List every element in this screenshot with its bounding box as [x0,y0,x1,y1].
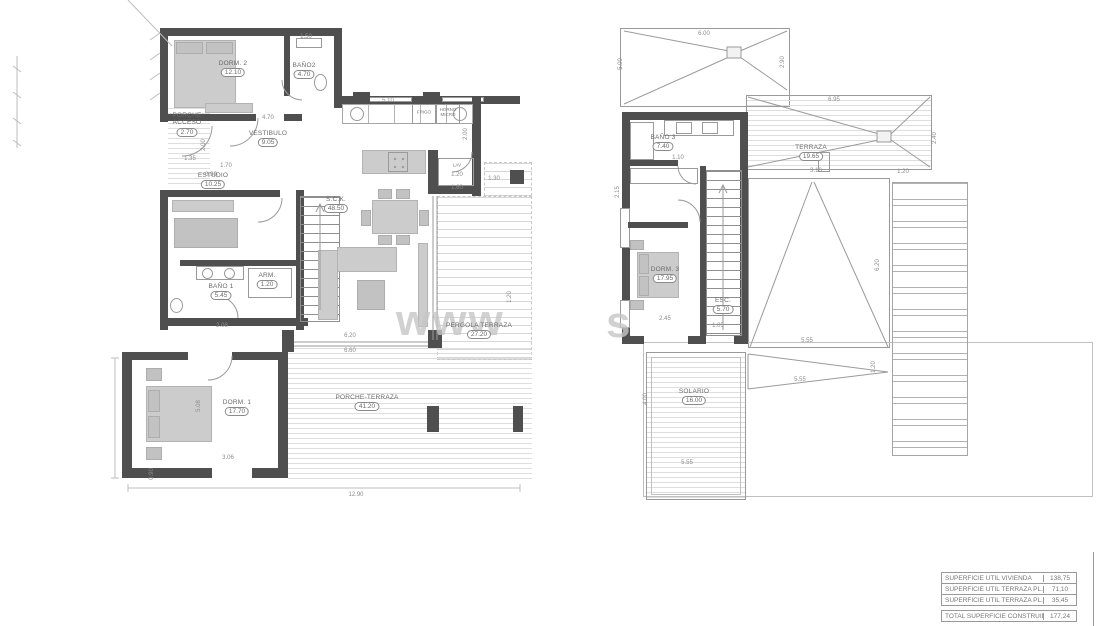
terraza-drain-diagonals [748,97,930,167]
dimension-label: 2.00 [463,128,469,140]
dimension-label: 6.20 [875,259,881,271]
dimension-label: 3.10 [810,168,822,174]
room-label-pergola-terraza: PERGOLA TERRAZA27.20 [446,322,512,339]
floorplan-sheet: www s [0,0,1110,626]
dimension-label: 1.30 [488,176,500,182]
room-label-solario: SOLARIO16.00 [679,388,709,405]
dimension-label: 0.90 [205,172,217,178]
room-label-vestibulo: VESTIBULO9.05 [249,130,287,147]
dimension-label: 1.35 [184,156,196,162]
dimension-lines [111,358,520,492]
dimension-label: 1.20 [897,169,909,175]
dimension-label: 1.20 [451,172,463,178]
surface-area-table: SUPERFICIE ÚTIL VIVIENDA 138,75 SUPERFIC… [941,572,1077,622]
dimension-label: 0.90 [149,468,155,480]
dimension-label: 2.40 [932,132,938,144]
dimension-label: 1.10 [672,155,684,161]
dimension-label: 1.05 [712,323,724,329]
room-label-bano2: BAÑO24.70 [292,62,315,79]
plan-linework [0,0,1110,626]
table-row-total: TOTAL SUPERFICIE CONSTRUIDA 177,24 [942,611,1076,621]
dimension-label: 5.55 [681,460,693,466]
dimension-label: 6.20 [344,333,356,339]
fridge-label: FRIGO [417,111,431,116]
surface-area-table-total: TOTAL SUPERFICIE CONSTRUIDA 177,24 [941,610,1077,622]
dimension-label: 5.55 [801,338,813,344]
site-boundary-lines [13,0,172,148]
room-label-porche-terraza: PORCHE-TERRAZA41.20 [335,394,398,411]
dimension-label: 3.06 [222,455,234,461]
roof-flat-diagonals [624,31,787,104]
dimension-label: 5.10 [382,98,394,104]
table-row: SUPERFICIE ÚTIL TERRAZA PL. ALTA 35,45 [942,595,1076,605]
dimension-label: 5.08 [196,400,202,412]
dimension-label: 5.00 [618,58,624,70]
dimension-label: 1.60 [451,185,463,191]
room-label-dorm-3: DORM. 317.95 [651,266,680,283]
dimension-label: 1.20 [507,291,513,303]
dimension-label: 4.00 [643,393,649,405]
dimension-label: 2.90 [780,56,786,68]
dimension-label: 12.90 [348,492,363,498]
dimension-label: 1.70 [220,163,232,169]
room-label-bano3: BAÑO 37.40 [650,134,675,151]
surface-area-table-group: SUPERFICIE ÚTIL VIVIENDA 138,75 SUPERFIC… [941,572,1077,606]
dimension-label: 5.55 [794,377,806,383]
watermark-fragment-right: s [606,298,632,348]
laundry-label: LAV [453,164,461,169]
room-label-esc: ESC.5.70 [713,297,734,314]
room-label-bano1: BAÑO 15.45 [208,283,233,300]
dimension-label: 2.08 [216,323,228,329]
room-label-sck: S.C.K.48.50 [324,196,348,213]
room-label-dorm-1: DORM. 117.70 [223,399,252,416]
dimension-label: 4.70 [262,115,274,121]
dimension-label: 2.00 [201,139,207,151]
table-row: SUPERFICIE ÚTIL VIVIENDA 138,75 [942,573,1076,584]
dimension-label: 1.50 [300,34,312,40]
dimension-label: 1.20 [871,361,877,373]
table-row: SUPERFICIE ÚTIL TERRAZA PL. BAJA 71,10 [942,584,1076,595]
dimension-label: 2.15 [615,186,621,198]
roof-main-diagonals [750,182,888,347]
dimension-label: 6.60 [344,348,356,354]
room-label-dorm-2: DORM. 212.10 [219,60,248,77]
dimension-label: 6.95 [828,97,840,103]
overhang-diagonals [748,354,888,389]
room-label-arm: ARM.1.20 [257,272,278,289]
oven-label: HORNO MICRO [440,108,457,118]
dimension-label: 2.45 [659,316,671,322]
stair-direction-arrows [316,185,727,330]
dimension-label: 6.00 [698,31,710,37]
room-label-terraza: TERRAZA19.65 [795,144,827,161]
room-label-porche-acceso: PORCHE ACCESO2.70 [172,112,201,137]
